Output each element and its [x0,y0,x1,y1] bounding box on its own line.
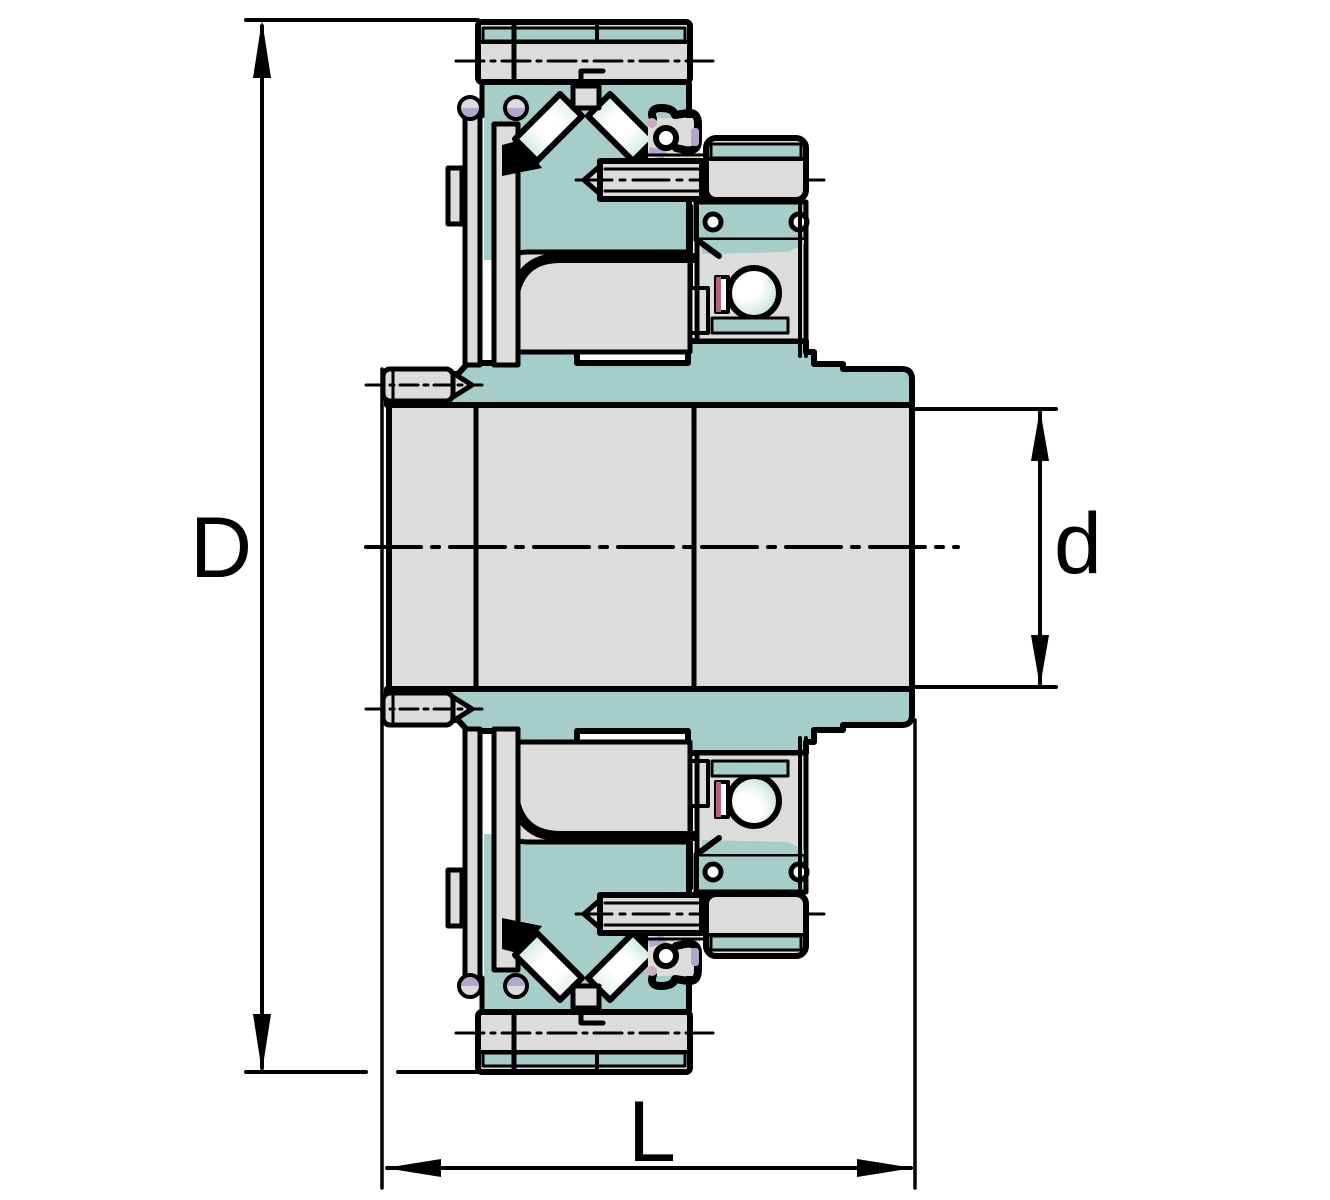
arrowhead-down-icon [1031,635,1049,687]
arrowhead-up-icon [253,20,271,78]
cage-bridge [573,86,599,108]
dimension-label-outer-diameter: D [190,500,252,596]
dimension-label-bore-diameter: d [1054,496,1102,592]
bearing-assembly-bottom-half-mirror [366,689,912,1072]
arrowhead-down-icon [253,1014,271,1072]
bearing-assembly-top-half [366,22,912,405]
bolt-hole-left [705,214,721,230]
arrowhead-right-icon [857,1159,913,1177]
o-ring-seal-left [459,97,481,119]
collar-ring [706,138,806,200]
seal-lip-mark [716,277,721,312]
arrowhead-up-icon [1031,409,1049,461]
seal-ring-eye [656,128,676,148]
collar-band [696,202,807,240]
arrowhead-left-icon [385,1159,441,1177]
dimension-label-overall-length: L [628,1084,676,1180]
bearing-cross-section-drawing: D d L [0,0,1330,1200]
raceway-step [712,318,788,333]
seal-assembly [645,108,712,159]
bearing-ball [729,268,779,318]
clamp-plate-outer [465,114,480,365]
side-tab [448,168,462,224]
o-ring-seal-right [505,97,527,119]
shaft [366,405,958,689]
figure-canvas: D d L [0,0,1330,1200]
